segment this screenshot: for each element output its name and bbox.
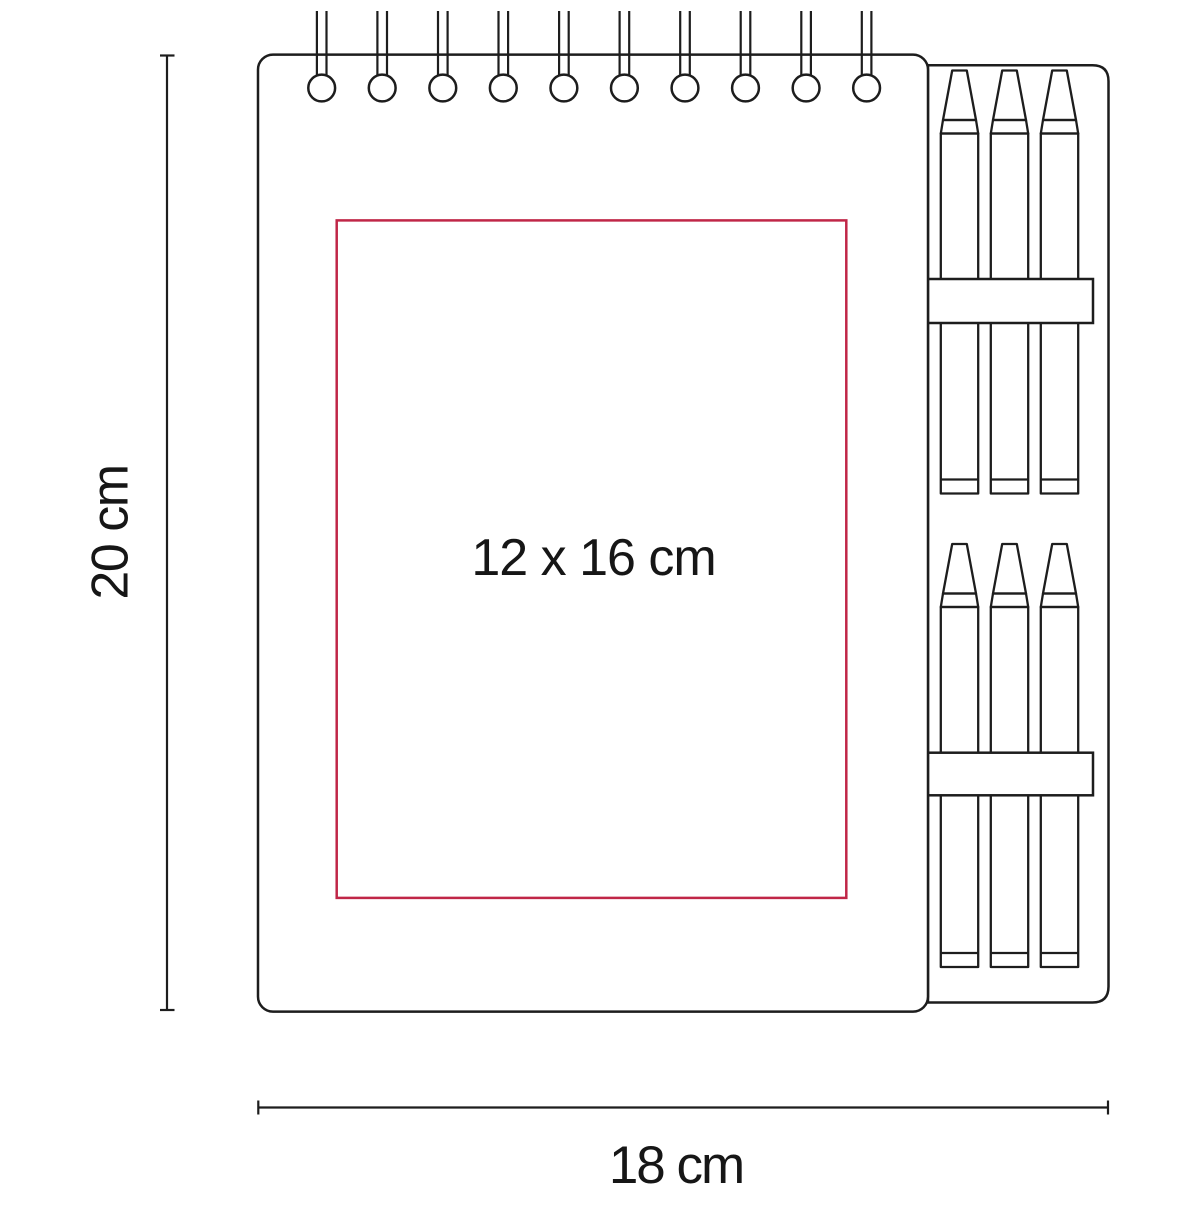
svg-text:12 x 16 cm: 12 x 16 cm — [471, 529, 715, 587]
svg-text:18 cm: 18 cm — [609, 1136, 743, 1195]
svg-text:20 cm: 20 cm — [82, 465, 140, 599]
